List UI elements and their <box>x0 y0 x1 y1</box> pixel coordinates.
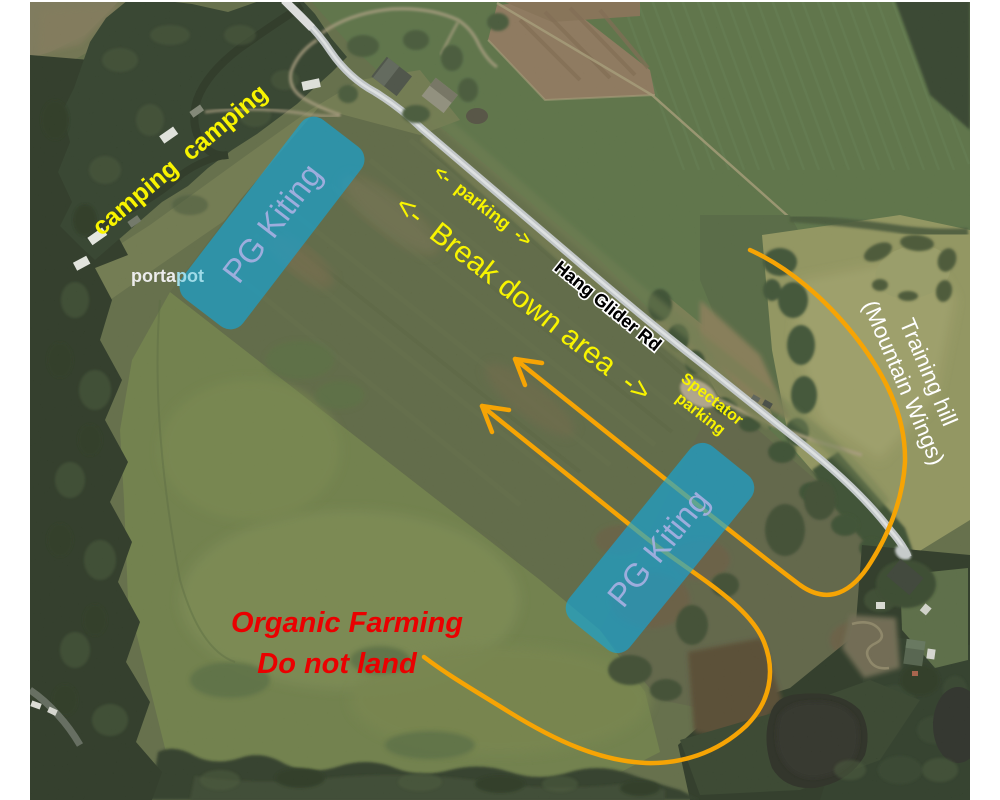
svg-text:portapot: portapot <box>131 266 204 286</box>
svg-text:Do not land: Do not land <box>257 648 418 680</box>
svg-text:Organic Farming: Organic Farming <box>231 607 463 639</box>
